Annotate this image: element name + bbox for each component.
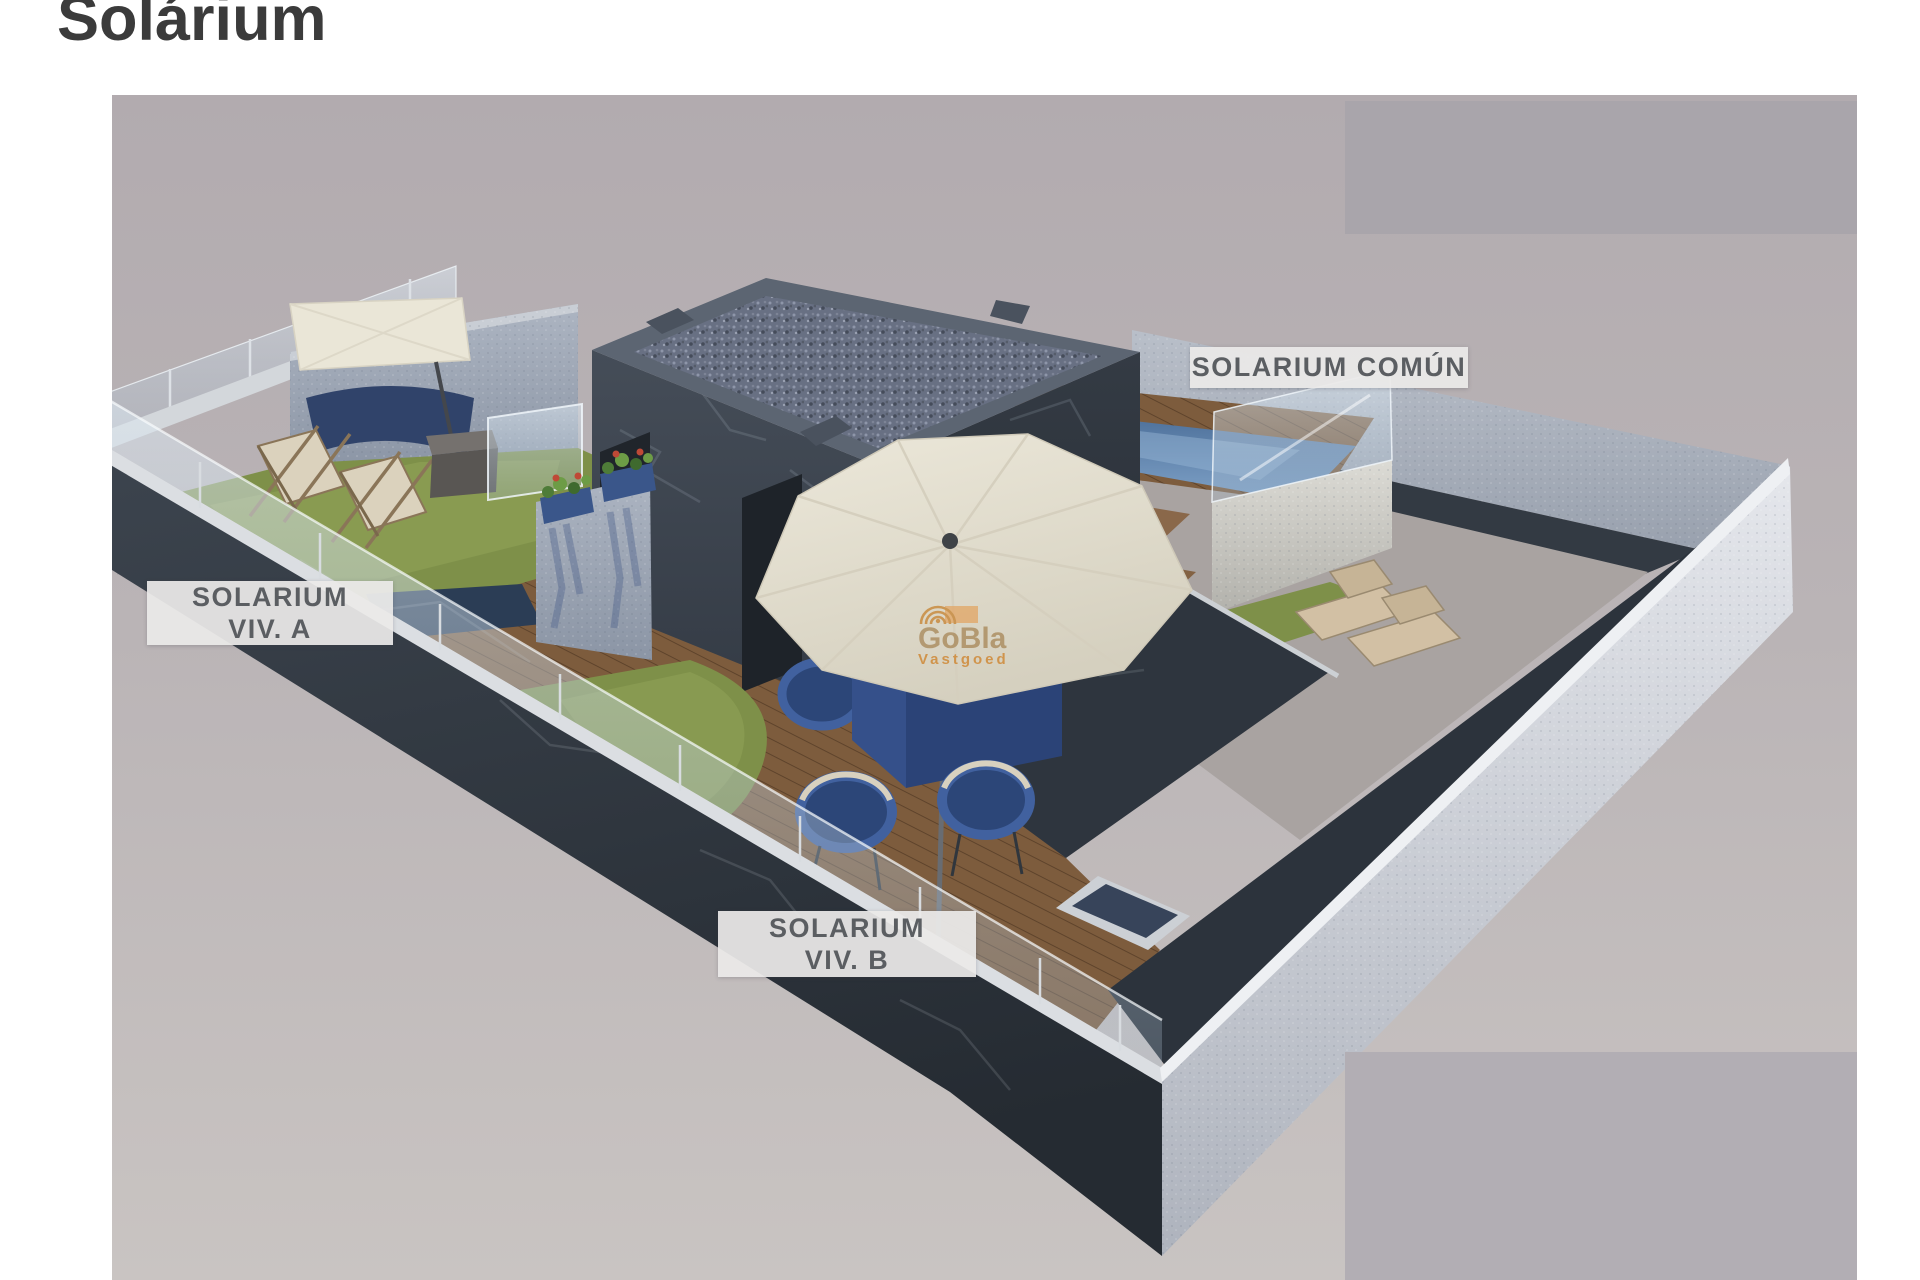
solarium-render-frame: GoBla Vastgoed SOLARIUM COMÚN SOLARIUM V… [112, 95, 1857, 1280]
label-line2: VIV. B [805, 944, 890, 976]
label-solarium-viv-a: SOLARIUM VIV. A [147, 581, 393, 645]
label-line1: SOLARIUM [192, 581, 348, 613]
logo-bar-right [966, 606, 978, 623]
page-title: Solárium [57, 0, 327, 52]
label-text: SOLARIUM COMÚN [1192, 347, 1466, 388]
watermark-brand: GoBla [918, 626, 1004, 652]
label-line2: VIV. A [228, 613, 312, 645]
concentric-arcs-icon [917, 594, 959, 626]
label-solarium-comun: SOLARIUM COMÚN [1190, 347, 1468, 388]
watermark-subtitle: Vastgoed [918, 652, 1004, 668]
solarium-3d-render [112, 95, 1857, 1280]
parasol-finial [942, 533, 958, 549]
gobla-logo [918, 604, 1004, 624]
watermark: GoBla Vastgoed [918, 604, 1004, 668]
label-line1: SOLARIUM [769, 912, 925, 944]
label-solarium-viv-b: SOLARIUM VIV. B [718, 911, 976, 977]
redacted-region-top [1345, 101, 1857, 234]
divider-glass-panel [488, 404, 582, 500]
redacted-region-bottom [1345, 1052, 1857, 1280]
